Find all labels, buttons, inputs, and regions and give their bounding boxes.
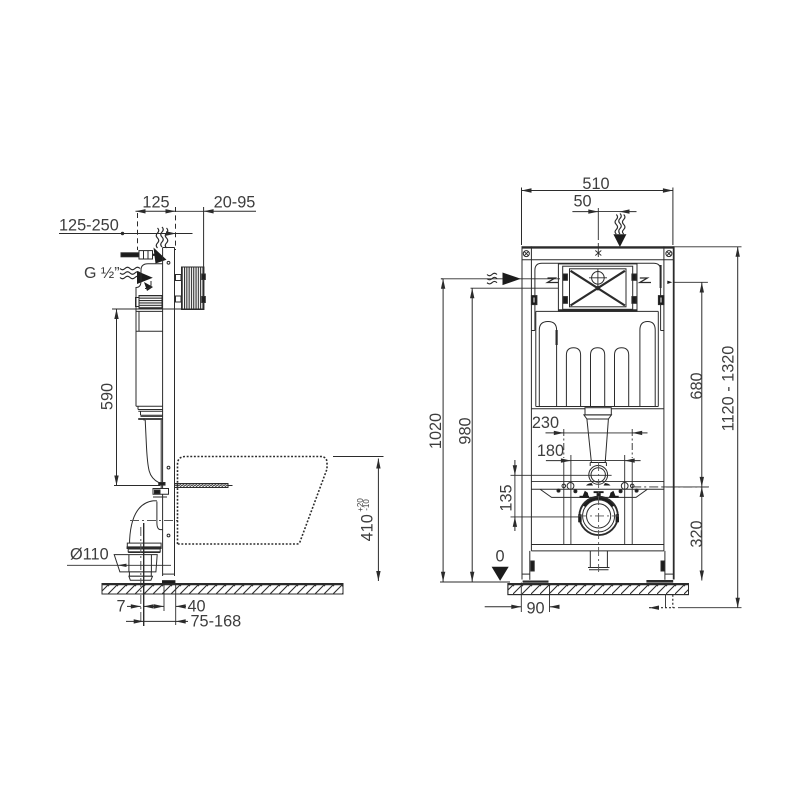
svg-text:20-95: 20-95 bbox=[214, 194, 256, 212]
svg-text:125-250: 125-250 bbox=[59, 217, 119, 235]
svg-text:7: 7 bbox=[116, 598, 125, 616]
svg-text:180: 180 bbox=[537, 442, 564, 460]
svg-text:590: 590 bbox=[99, 383, 117, 410]
svg-text:75-168: 75-168 bbox=[191, 613, 242, 631]
svg-text:980: 980 bbox=[457, 417, 475, 444]
svg-text:125: 125 bbox=[142, 194, 169, 212]
svg-text:90: 90 bbox=[526, 600, 544, 618]
svg-text:410: 410 bbox=[359, 514, 377, 541]
svg-text:1020: 1020 bbox=[427, 413, 445, 449]
svg-text:680: 680 bbox=[688, 372, 706, 399]
svg-text:-10: -10 bbox=[362, 499, 371, 511]
svg-text:G ½”: G ½” bbox=[84, 265, 120, 282]
svg-text:1120 - 1320: 1120 - 1320 bbox=[720, 346, 738, 432]
svg-text:50: 50 bbox=[573, 193, 591, 211]
svg-text:230: 230 bbox=[532, 414, 559, 432]
svg-text:135: 135 bbox=[498, 484, 516, 511]
svg-text:320: 320 bbox=[688, 520, 706, 547]
svg-text:Ø110: Ø110 bbox=[70, 546, 109, 564]
svg-text:0: 0 bbox=[495, 548, 504, 566]
